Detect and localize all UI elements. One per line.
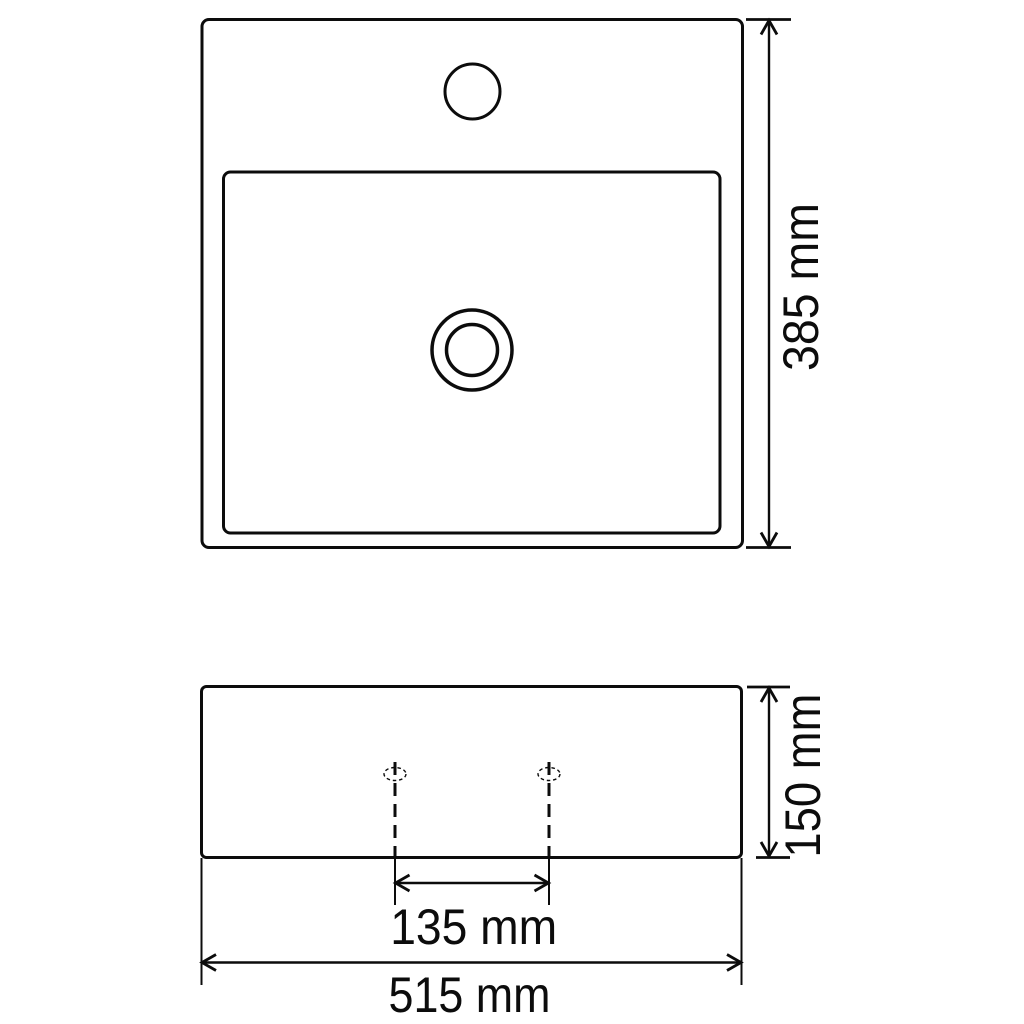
svg-text:135 mm: 135 mm xyxy=(390,899,557,955)
svg-text:150 mm: 150 mm xyxy=(775,694,831,858)
svg-text:385 mm: 385 mm xyxy=(773,203,829,371)
svg-text:515 mm: 515 mm xyxy=(389,967,551,1023)
